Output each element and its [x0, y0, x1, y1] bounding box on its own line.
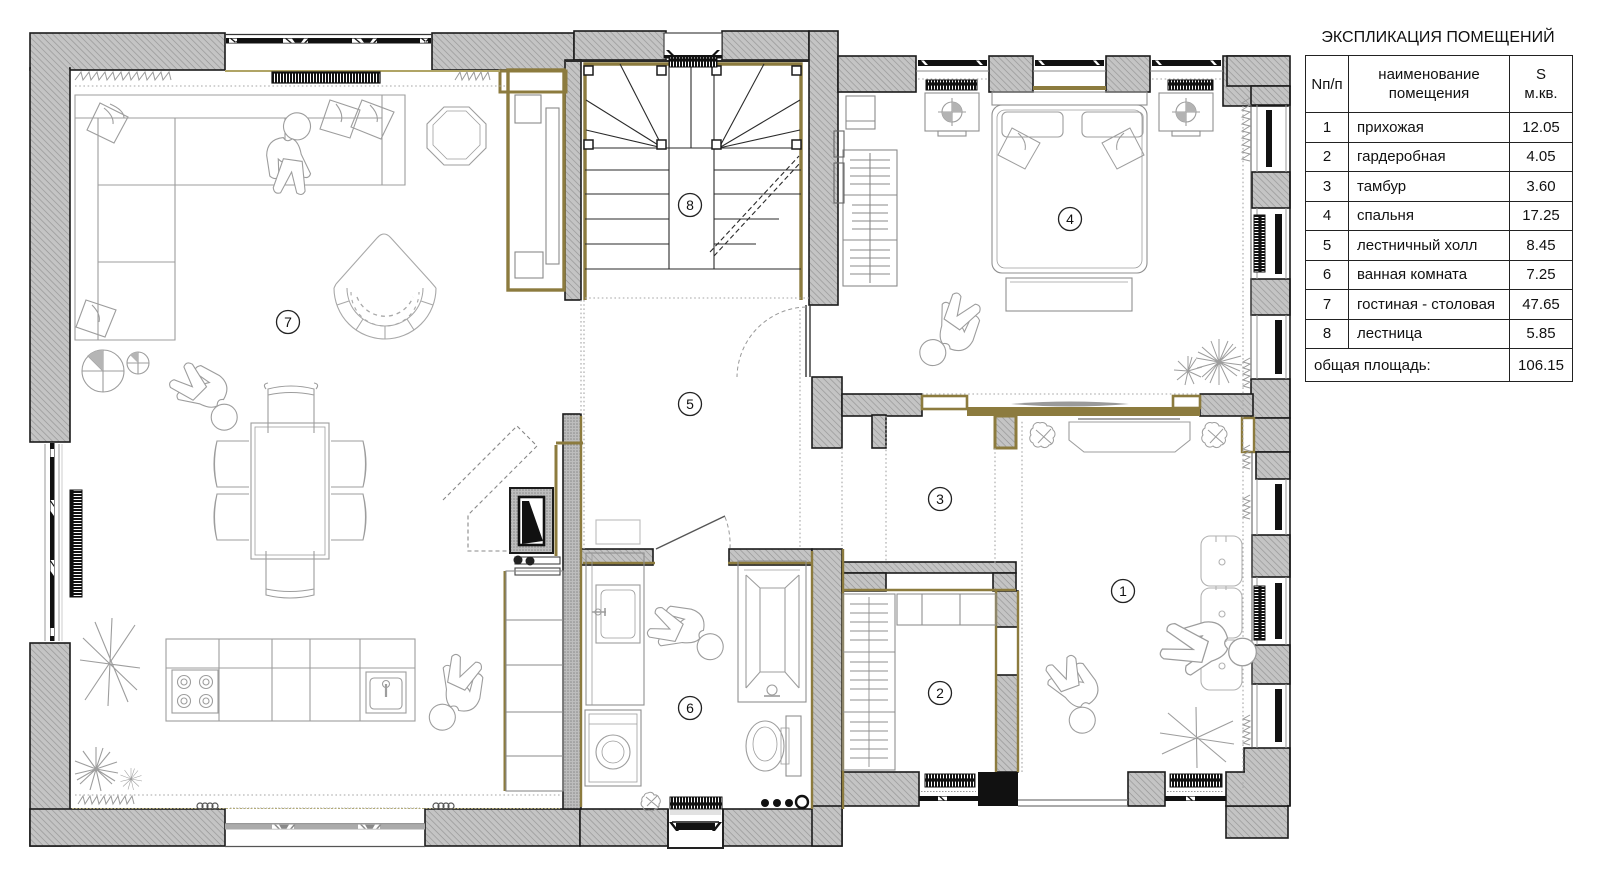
svg-text:4: 4	[1066, 211, 1074, 227]
svg-text:2: 2	[936, 685, 944, 701]
svg-text:5: 5	[686, 396, 694, 412]
svg-text:6: 6	[686, 700, 694, 716]
svg-text:3: 3	[936, 491, 944, 507]
svg-text:7: 7	[284, 314, 292, 330]
svg-text:8: 8	[686, 197, 694, 213]
svg-text:1: 1	[1119, 583, 1127, 599]
